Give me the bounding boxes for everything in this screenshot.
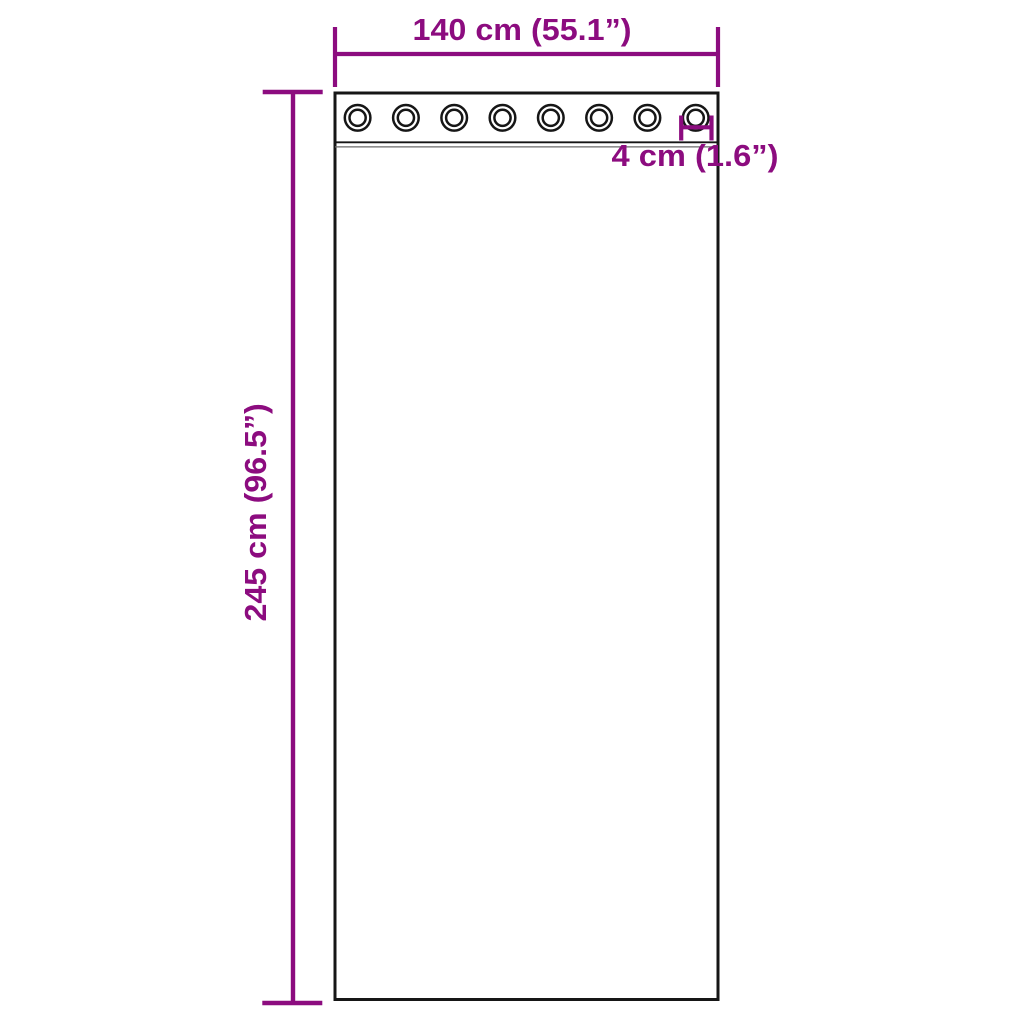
- svg-text:245 cm (96.5”): 245 cm (96.5”): [238, 403, 273, 621]
- svg-text:140 cm (55.1”): 140 cm (55.1”): [413, 12, 632, 47]
- svg-text:4 cm (1.6”): 4 cm (1.6”): [612, 138, 779, 173]
